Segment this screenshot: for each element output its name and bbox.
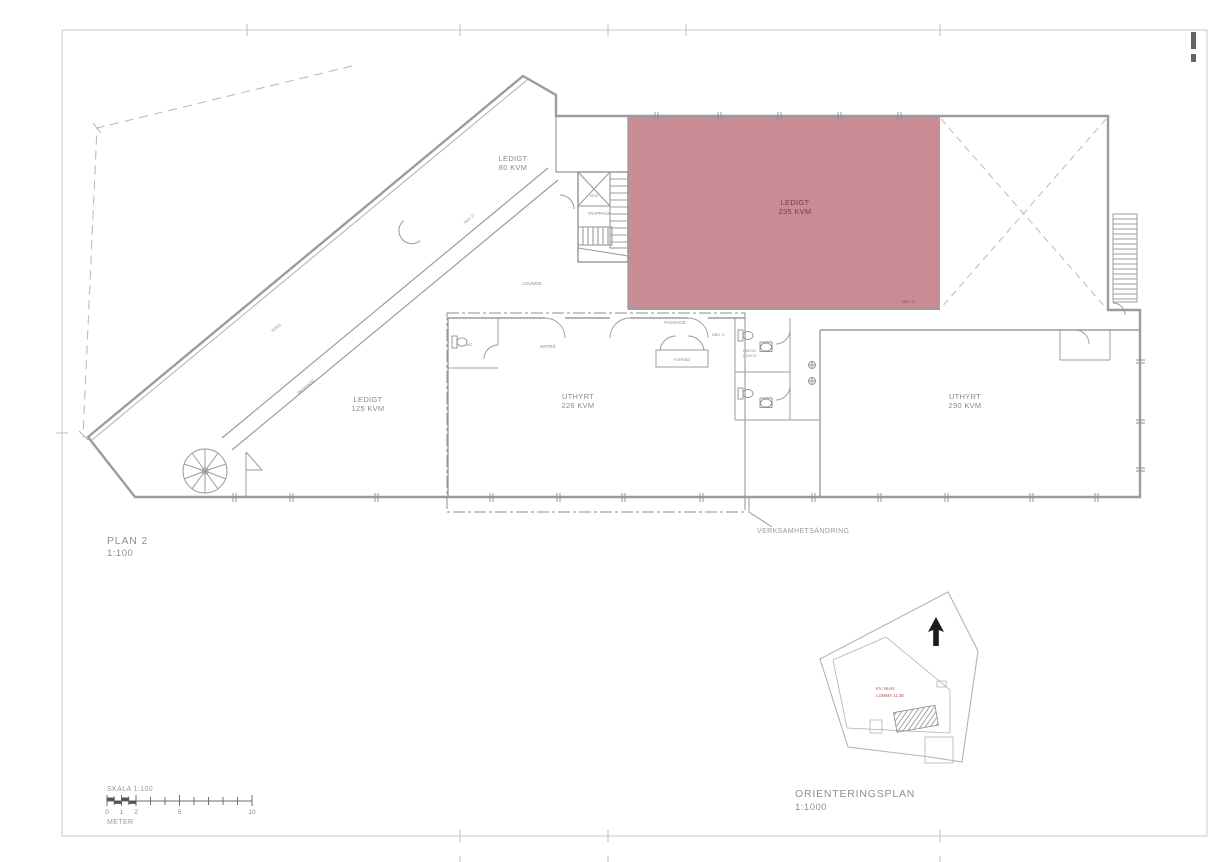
void-cross	[941, 119, 1106, 308]
radiator-icon	[809, 362, 817, 369]
fixtures	[452, 330, 816, 408]
site-label-line1: KV. NIAN	[876, 686, 894, 691]
label-passage-horizontal: PASSAGE	[664, 320, 685, 325]
plan-scale: 1:100	[107, 548, 133, 559]
site-boundary	[820, 592, 978, 762]
titleblock-text-marks	[1191, 32, 1196, 62]
diagonal-corridor	[222, 168, 558, 450]
door-arc	[560, 195, 574, 209]
radiator-icon	[809, 378, 817, 385]
room-label-uthyrt226: UTHYRT	[562, 392, 594, 401]
room-area-ledigt125: 125 KVM	[352, 404, 385, 413]
scalebar-tick-1: 1	[120, 809, 124, 816]
room-label-ledigt80: LEDIGT	[499, 154, 528, 163]
sink-icon	[760, 342, 772, 352]
stair-core	[560, 172, 628, 262]
annotation-verksamhetsandring: VERKSAMHETSÄNDRING	[757, 527, 849, 535]
scalebar-title: SKALA 1:100	[107, 786, 153, 793]
forrad-closet	[656, 336, 708, 367]
room-label-ledigt125: LEDIGT	[354, 395, 383, 404]
label-rwc: RWC/D	[743, 349, 756, 353]
label-passage-diagonal: PASSAGE	[296, 378, 315, 395]
label-torg: TORG	[270, 322, 282, 333]
orientation-plan: KV. NIAN LOMMA 11:38 ORIENTERINGSPLAN 1:…	[795, 592, 978, 813]
double-door	[394, 221, 421, 249]
label-dusch: DUSCH	[743, 354, 757, 358]
label-lounge: LOUNGE	[522, 281, 541, 286]
label-wc: WC	[466, 343, 473, 347]
orientation-title: ORIENTERINGSPLAN	[795, 788, 915, 800]
room-area-uthyrt226: 226 KVM	[562, 401, 595, 410]
drawing-sheet: LEDIGT 80 KVM LEDIGT 235 KVM LEDIGT 125 …	[0, 0, 1220, 862]
label-ned17-red: NED 17	[902, 300, 915, 304]
plan-title: PLAN 2	[107, 535, 148, 547]
scalebar-tick-5: 5	[178, 809, 182, 816]
leader-line	[749, 497, 772, 527]
scalebar-unit: METER	[107, 819, 134, 826]
wc-cluster	[735, 318, 820, 420]
scalebar-tick-10: 10	[248, 809, 256, 816]
floorplan-drawing: LEDIGT 80 KVM LEDIGT 235 KVM LEDIGT 125 …	[0, 0, 1220, 862]
toilet-icon	[452, 336, 467, 348]
label-ned17-corridor: NED 17	[463, 213, 476, 225]
room-label-ledigt235: LEDIGT	[781, 198, 810, 207]
room-label-uthyrt290: UTHYRT	[949, 392, 981, 401]
scalebar-tick-2: 2	[134, 809, 138, 816]
subject-building-hatched	[894, 705, 939, 732]
building-outline	[88, 76, 1140, 497]
north-arrow	[928, 617, 944, 646]
room-area-ledigt235: 235 KVM	[779, 207, 812, 216]
label-hiss: HISS	[590, 194, 599, 198]
label-trapphus: TRAPPHUS	[588, 211, 611, 216]
scale-bar: SKALA 1:100 0 1 2 5 10 METER	[105, 786, 256, 826]
orientation-scale: 1:1000	[795, 802, 827, 813]
site-label-line2: LOMMA 11:38	[876, 693, 904, 698]
label-ned17-passage: NED 17	[712, 333, 725, 337]
scalebar-tick-0: 0	[105, 809, 109, 816]
room-area-ledigt80: 80 KVM	[499, 163, 527, 172]
spiral-stair	[183, 449, 262, 497]
label-entre: ENTRÉ	[540, 343, 555, 349]
external-stair	[1113, 214, 1137, 315]
room-area-uthyrt290: 290 KVM	[949, 401, 982, 410]
label-forrad: FÖRRÅD	[674, 357, 691, 362]
sink-icon	[760, 398, 772, 408]
plan-title-block: PLAN 2 1:100	[107, 535, 148, 559]
